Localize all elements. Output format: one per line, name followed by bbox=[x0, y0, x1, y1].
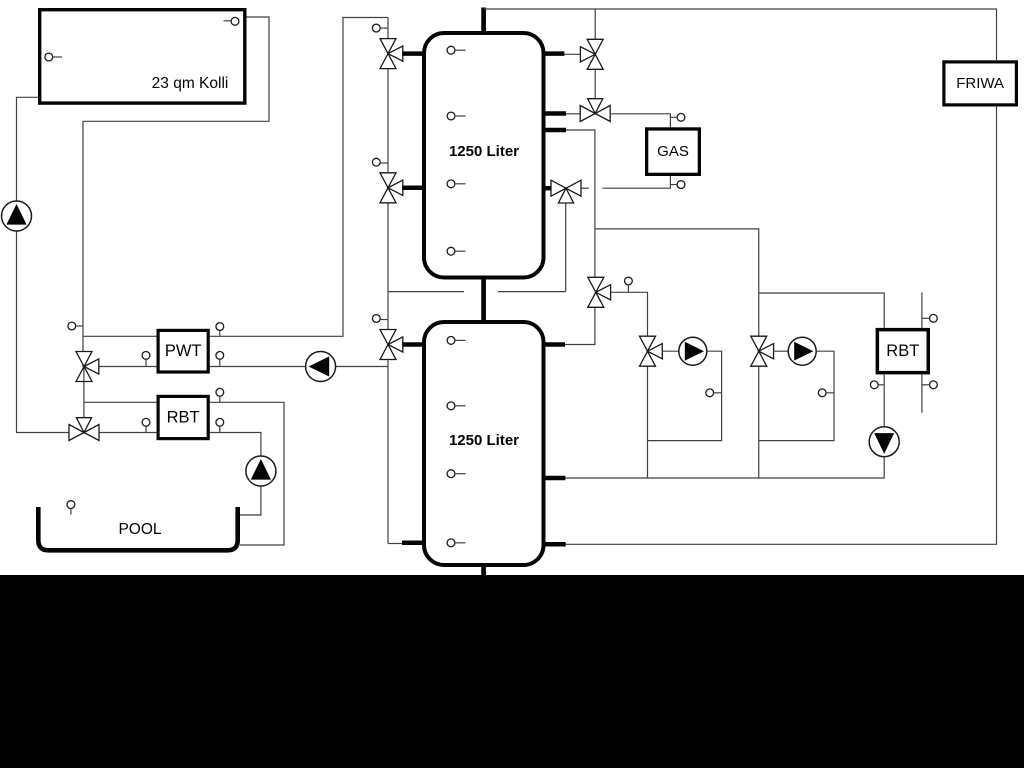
svg-text:PWT: PWT bbox=[165, 342, 202, 360]
svg-text:23 qm Kolli: 23 qm Kolli bbox=[152, 75, 229, 92]
svg-text:1250 Liter: 1250 Liter bbox=[449, 432, 519, 449]
svg-text:1250 Liter: 1250 Liter bbox=[449, 143, 519, 160]
svg-text:POOL: POOL bbox=[118, 521, 161, 538]
svg-text:GAS: GAS bbox=[657, 143, 689, 160]
svg-text:FRIWA: FRIWA bbox=[956, 75, 1004, 92]
svg-text:RBT: RBT bbox=[886, 342, 919, 360]
svg-text:RBT: RBT bbox=[167, 409, 200, 427]
